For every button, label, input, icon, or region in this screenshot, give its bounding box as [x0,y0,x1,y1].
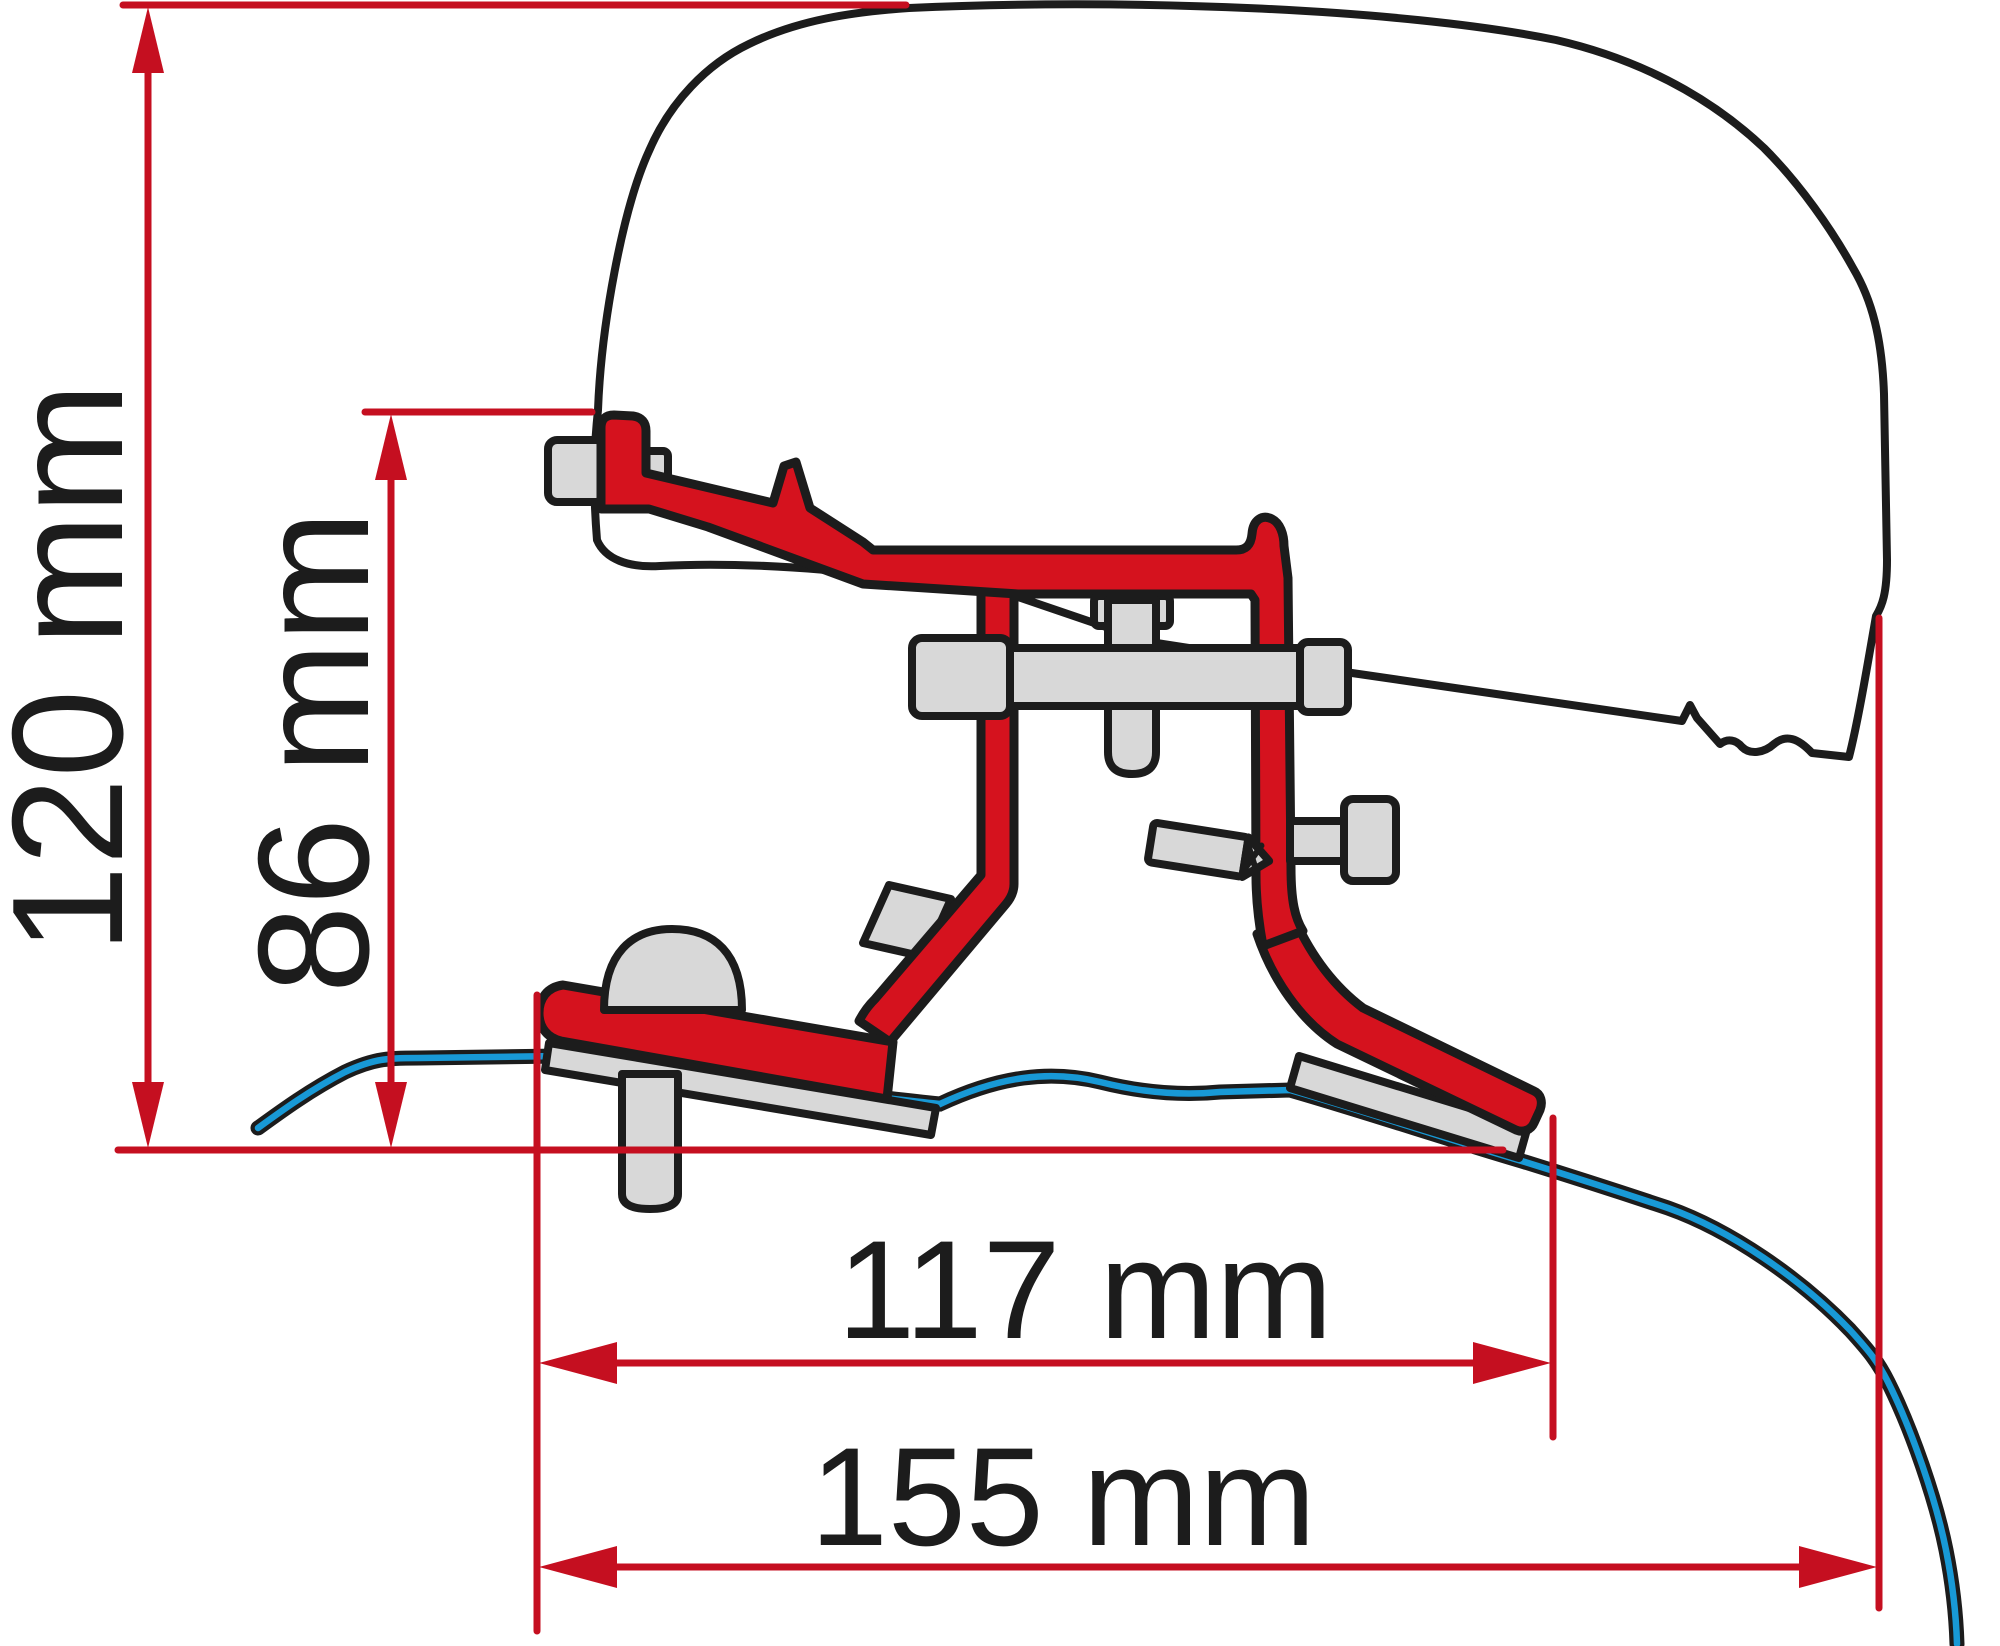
side-bolt-head [1344,799,1396,881]
dimension-label-117mm: 117 mm [837,1211,1332,1368]
foot-bolt [622,1074,678,1209]
dimension-label-155mm: 155 mm [810,1418,1316,1575]
awning-adapter-diagram: 120 mm 86 mm 117 mm 155 mm [0,0,2000,1646]
clamp-bolt-head [912,638,1010,716]
clamp-bolt-shaft [1006,648,1304,706]
dimension-label-120mm: 120 mm [0,383,156,954]
side-bolt-shaft [1290,821,1348,861]
diagram-canvas: 120 mm 86 mm 117 mm 155 mm [0,0,2000,1646]
clamp-bolt-nut [1300,642,1348,712]
rail-bolt-head [548,440,605,502]
dimension-label-86mm: 86 mm [226,511,402,994]
